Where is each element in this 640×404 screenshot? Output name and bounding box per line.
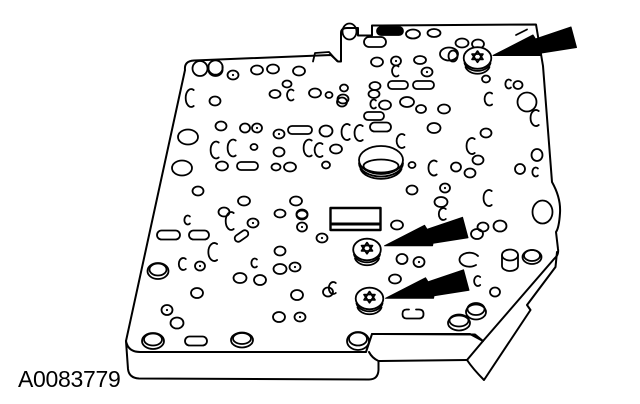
svg-text:A0083779: A0083779 — [18, 366, 120, 392]
